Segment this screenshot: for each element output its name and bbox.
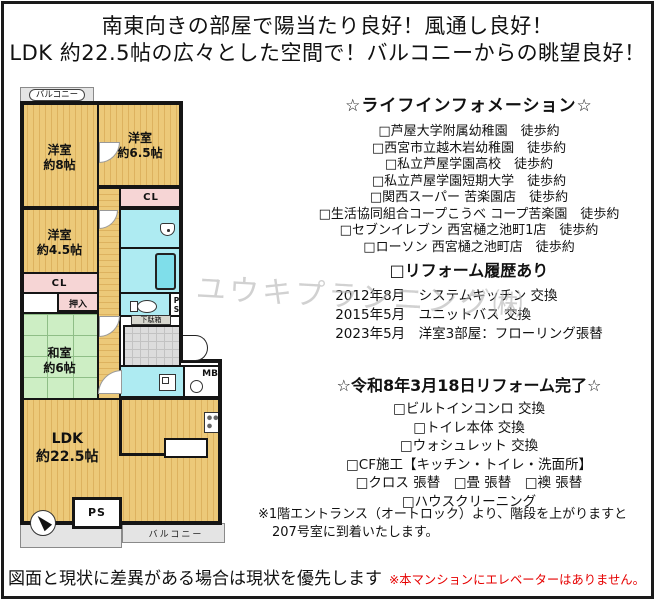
- closet-top-label: CL: [121, 192, 181, 203]
- reform-completed-item: □ビルトインコンロ 交換: [288, 400, 650, 419]
- room-western-8-label: 洋室約8帖: [22, 143, 97, 173]
- reform-completed-item: □クロス 張替 □畳 張替 □襖 張替: [288, 474, 650, 493]
- life-information-heading: ☆ライフインフォメーション☆: [288, 91, 650, 116]
- entrance-note: ※1階エントランス（オートロック）より、階段を上がりますと 207号室に到着いた…: [258, 506, 650, 541]
- reform-completed-list: □ビルトインコンロ 交換□トイレ本体 交換□ウォシュレット 交換□CF施工【キッ…: [288, 400, 650, 511]
- header: 南東向きの部屋で陽当たり良好！風通し良好！ LDK 約22.5帖の広々とした空間…: [0, 13, 655, 67]
- bathtub-icon: [155, 253, 176, 290]
- entrance-note-line1: ※1階エントランス（オートロック）より、階段を上がりますと: [258, 506, 650, 524]
- shoe-box: 下駄箱: [131, 315, 171, 325]
- wall: [20, 101, 183, 105]
- laundry-space: [119, 365, 185, 398]
- room-ldk-label: LDK約22.5帖: [36, 430, 99, 466]
- facility-item: □西宮市立越木岩幼稚園 徒歩約: [288, 141, 650, 158]
- entrance-note-line2: 207号室に到着いたします。: [258, 524, 650, 542]
- facility-item: □芦屋大学附属幼稚園 徒歩約: [288, 124, 650, 141]
- bathroom: [119, 247, 183, 294]
- futon-closet: 押入: [57, 292, 99, 312]
- room-western-4-5: 洋室約4.5帖: [20, 208, 99, 274]
- compass-icon: [30, 510, 56, 536]
- section-life-information: ☆ライフインフォメーション☆ □芦屋大学附属幼稚園 徒歩約□西宮市立越木岩幼稚園…: [288, 91, 650, 256]
- facility-item: □ローソン 西宮樋之池町店 徒歩約: [288, 240, 650, 257]
- meter-box: MB: [183, 365, 222, 398]
- meter-box-label: MB: [202, 369, 218, 379]
- section-reform-completed: ☆令和8年3月18日リフォーム完了☆ □ビルトインコンロ 交換□トイレ本体 交換…: [288, 372, 650, 511]
- closet-left-label: CL: [22, 278, 97, 289]
- toilet-room: [119, 292, 171, 317]
- washroom: [119, 208, 183, 249]
- meter-icon: [190, 380, 203, 393]
- reform-completed-item: □CF施工【キッチン・トイレ・洗面所】: [288, 456, 650, 475]
- headline-line2: LDK 約22.5帖の広々とした空間で！バルコニーからの眺望良好！: [0, 40, 655, 67]
- entry-door-arc: [183, 335, 208, 361]
- pipe-space-bottom: PS: [72, 497, 122, 529]
- entrance: [123, 325, 181, 367]
- balcony-top: バルコニー: [20, 87, 94, 102]
- sink-icon: [160, 223, 175, 236]
- balcony-top-label: バルコニー: [29, 89, 85, 101]
- closet-left: CL: [20, 272, 99, 294]
- kitchen-counter: [164, 438, 208, 458]
- closet-top: CL: [119, 187, 183, 208]
- balcony-bottom-label: バルコニー: [130, 527, 222, 540]
- room-japanese-6: 和室約6帖: [20, 312, 99, 400]
- room-japanese-6-label: 和室約6帖: [22, 346, 97, 376]
- life-information-list: □芦屋大学附属幼稚園 徒歩約□西宮市立越木岩幼稚園 徒歩約□私立芦屋学園高校 徒…: [288, 124, 650, 256]
- floor-plan: バルコニー バルコニー 洋室約8帖 洋室約6.5帖 CL 洋室約4.5帖 CL …: [12, 86, 234, 558]
- room-western-4-5-label: 洋室約4.5帖: [22, 228, 97, 258]
- kitchen-wall: [119, 398, 122, 456]
- room-western-8: 洋室約8帖: [20, 101, 99, 208]
- facility-item: □関西スーパー 苦楽園店 徒歩約: [288, 190, 650, 207]
- facility-item: □私立芦屋学園高校 徒歩約: [288, 157, 650, 174]
- elevator-warning-text: ※本マンションにエレベーターはありません。: [389, 570, 645, 588]
- reform-history-item: 2023年5月 洋室3部屋：フローリング張替: [335, 325, 603, 344]
- headline-line1: 南東向きの部屋で陽当たり良好！風通し良好！: [0, 13, 655, 40]
- facility-item: □私立芦屋学園短期大学 徒歩約: [288, 174, 650, 191]
- reform-completed-item: □ウォシュレット 交換: [288, 437, 650, 456]
- futon-closet-label: 押入: [59, 297, 97, 310]
- reform-completed-item: □トイレ本体 交換: [288, 419, 650, 438]
- washing-machine-icon: [159, 374, 176, 391]
- facility-item: □生活協同組合コープこうべ コープ苦楽園 徒歩約: [288, 207, 650, 224]
- disclaimer-text: 図面と現状に差異がある場合は現状を優先します: [8, 564, 382, 589]
- reform-completed-heading: ☆令和8年3月18日リフォーム完了☆: [288, 372, 650, 396]
- facility-item: □セブンイレブン 西宮樋之池町1店 徒歩約: [288, 223, 650, 240]
